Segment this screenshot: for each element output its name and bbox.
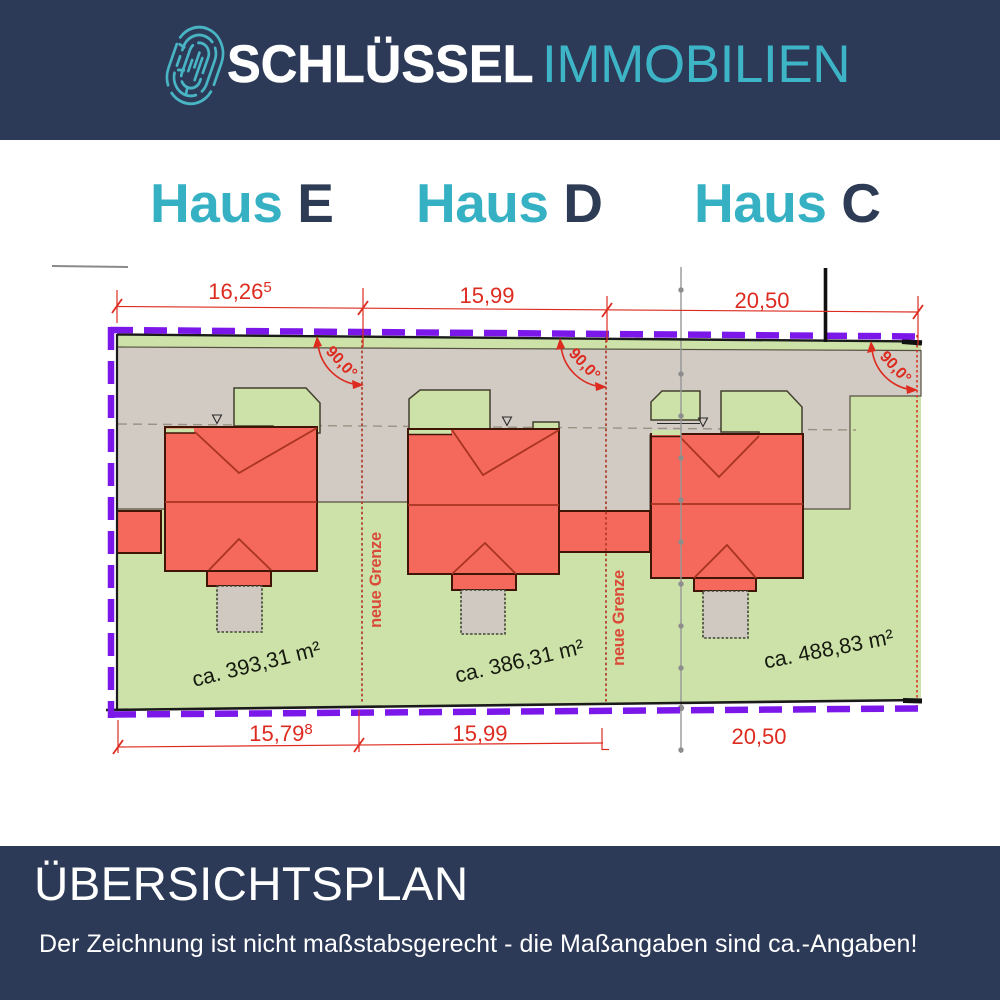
svg-text:15,99: 15,99	[452, 721, 507, 746]
svg-text:20,50: 20,50	[734, 288, 789, 313]
svg-text:neue Grenze: neue Grenze	[610, 570, 628, 666]
svg-text:neue Grenze: neue Grenze	[367, 532, 385, 628]
svg-text:15,99: 15,99	[459, 283, 514, 308]
svg-text:16,265: 16,265	[208, 279, 271, 304]
svg-text:15,798: 15,798	[249, 721, 312, 746]
svg-text:20,50: 20,50	[731, 724, 786, 749]
